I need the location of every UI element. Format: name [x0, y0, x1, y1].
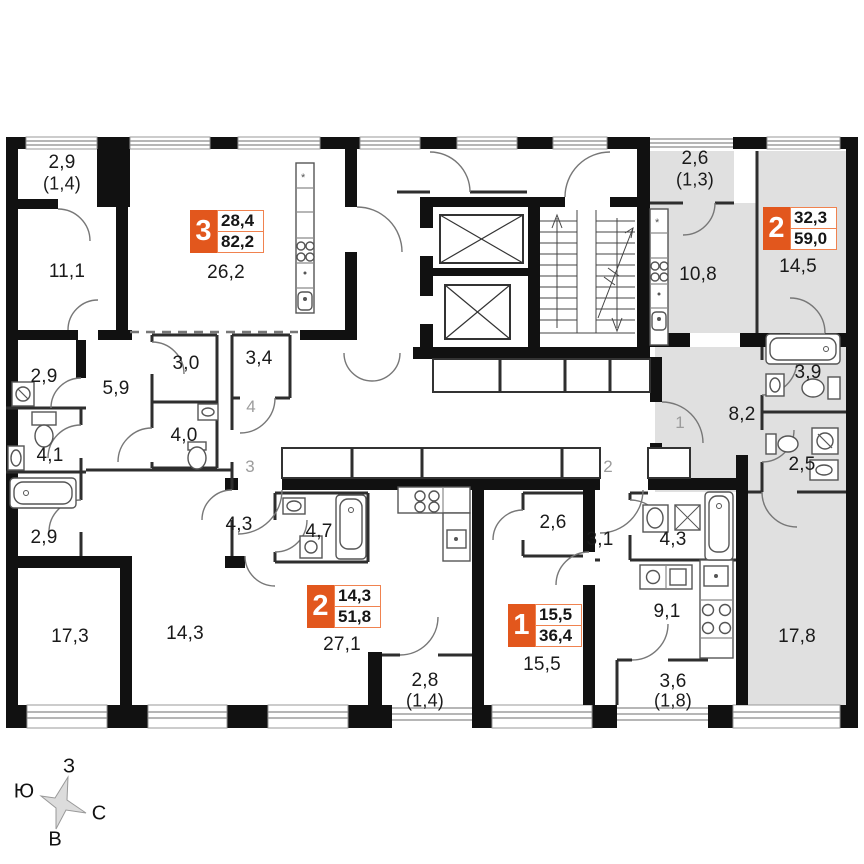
compass-north-label: С	[92, 803, 106, 826]
compass-west-label: З	[63, 756, 75, 779]
room-count: 2	[763, 207, 790, 250]
total-area: 59,0	[791, 229, 836, 249]
staircase	[540, 210, 635, 333]
living-area: 15,5	[536, 605, 581, 626]
room-label: 3,1	[586, 529, 613, 551]
room-label: 26,2	[207, 262, 245, 284]
room-count: 1	[508, 604, 535, 647]
total-area: 51,8	[335, 607, 380, 627]
room-label: 9,1	[653, 601, 680, 623]
floor-plan-drawing: *	[0, 0, 864, 864]
unit-number: 1	[675, 413, 684, 433]
living-area: 28,4	[218, 211, 263, 232]
total-area: 82,2	[218, 232, 263, 252]
room-label-sub: (1,4)	[43, 174, 81, 195]
room-label: 2,5	[788, 454, 815, 476]
unit-number: 2	[603, 457, 612, 477]
room-count: 3	[190, 210, 217, 253]
room-label: 10,8	[679, 264, 717, 286]
living-area: 32,3	[791, 208, 836, 229]
room-label: 2,8	[411, 670, 438, 692]
room-label: 4,7	[305, 521, 332, 543]
room-label: 4,1	[36, 445, 63, 467]
room-label: 2,6	[681, 148, 708, 170]
compass-east-label: В	[48, 829, 61, 852]
room-label: 17,3	[51, 626, 89, 648]
shaft-boxes	[282, 359, 690, 478]
room-label: 4,3	[225, 514, 252, 536]
unit-number: 3	[245, 457, 254, 477]
apartment-badge-3room[interactable]: 3 28,4 82,2	[190, 210, 264, 253]
room-label-sub: (1,4)	[406, 691, 444, 712]
compass-south-label: Ю	[14, 781, 34, 804]
room-label: 11,1	[49, 261, 85, 283]
elevator-shafts	[440, 215, 523, 339]
svg-text:*: *	[301, 172, 306, 184]
room-label: 4,0	[170, 425, 197, 447]
apartment-badge-2room-a[interactable]: 2 32,3 59,0	[763, 207, 837, 250]
room-label: 4,3	[659, 529, 686, 551]
unit-number: 4	[246, 397, 255, 417]
total-area: 36,4	[536, 626, 581, 646]
room-label: 3,4	[245, 348, 272, 370]
room-label: 2,6	[539, 512, 566, 534]
room-label: 3,9	[794, 362, 821, 384]
apartment-badge-1room[interactable]: 1 15,5 36,4	[508, 604, 582, 647]
room-label: 14,3	[166, 623, 204, 645]
room-label-sub: (1,8)	[654, 691, 692, 712]
room-label: 2,9	[48, 152, 75, 174]
svg-text:*: *	[655, 217, 660, 229]
room-label: 3,0	[172, 353, 199, 375]
apartment-badge-2room-b[interactable]: 2 14,3 51,8	[307, 585, 381, 628]
room-label: 5,9	[102, 378, 129, 400]
room-label: 27,1	[323, 634, 361, 656]
room-label: 2,9	[30, 366, 57, 388]
room-label: 17,8	[778, 626, 816, 648]
room-label-sub: (1,3)	[676, 170, 714, 191]
floor-plan: *	[0, 0, 864, 864]
compass-rose	[41, 777, 86, 829]
room-count: 2	[307, 585, 334, 628]
room-label: 15,5	[523, 654, 561, 676]
room-label: 14,5	[779, 256, 817, 278]
room-label: 2,9	[30, 527, 57, 549]
living-area: 14,3	[335, 586, 380, 607]
room-label: 8,2	[728, 404, 755, 426]
